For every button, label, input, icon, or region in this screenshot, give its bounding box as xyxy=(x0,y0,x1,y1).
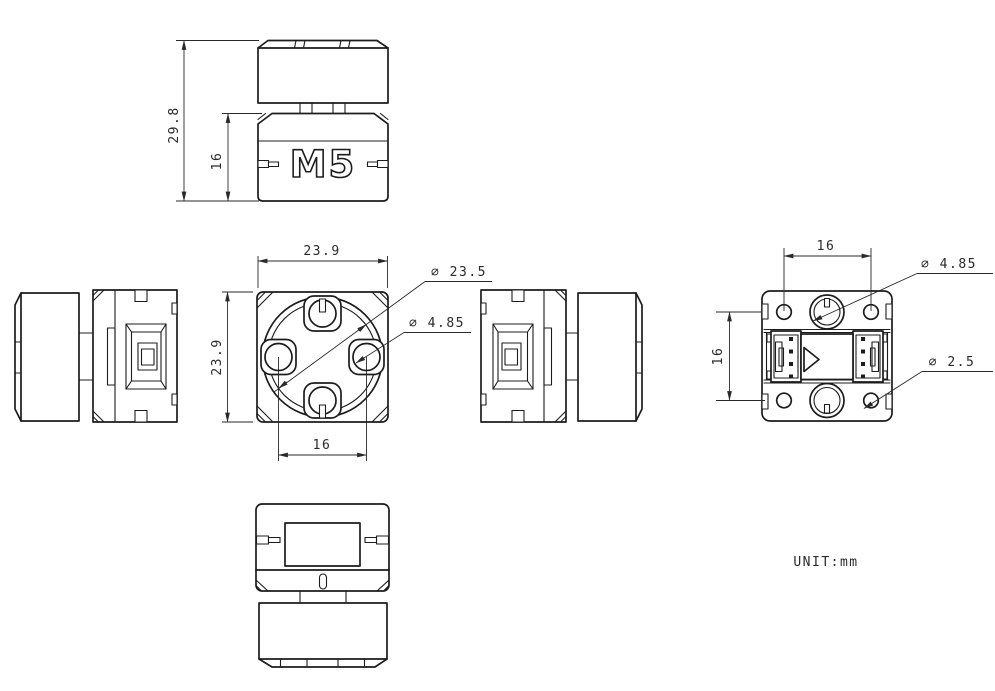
neck-left xyxy=(79,333,93,380)
conn-left-pin-3 xyxy=(789,362,793,366)
hole-top-index xyxy=(320,299,326,312)
barrel-right-body xyxy=(578,293,636,421)
bottom-barrel-skirt-ticks xyxy=(281,660,365,668)
drawing-canvas: M5 29.8 16 xyxy=(0,0,995,691)
conn-left-pin-2 xyxy=(789,350,793,354)
bottom-neck-lines xyxy=(300,591,346,603)
back-hole-top-index xyxy=(825,299,830,308)
bottom-tab-right-outer xyxy=(377,536,389,544)
dim-front-hole-spacing: 16 xyxy=(313,438,332,453)
front-height-ext xyxy=(222,292,253,422)
barrel-right-flange xyxy=(636,293,642,421)
barrel-right-ticks xyxy=(636,342,642,373)
view-side-elevation: M5 xyxy=(258,41,388,202)
dim-body-height: 16 xyxy=(210,152,225,171)
view-body-left xyxy=(93,290,177,422)
back-notch-bl xyxy=(762,394,768,409)
back-notch-tr xyxy=(886,304,892,319)
lens-barrel-side xyxy=(258,48,388,103)
body-left-top-tab xyxy=(135,290,147,302)
dim-back-spacing-h: 16 xyxy=(817,239,836,254)
body-right-bottom-tab xyxy=(512,411,524,423)
m5-logo: M5 xyxy=(290,143,357,186)
body-left-notch-bottom xyxy=(172,394,177,405)
extension-lines xyxy=(176,41,262,202)
view-barrel-right xyxy=(578,293,642,421)
body-right-notch-top xyxy=(481,303,486,314)
view-barrel-left xyxy=(15,293,79,421)
view-body-right xyxy=(481,290,566,422)
unit-label: UNIT:mm xyxy=(793,555,858,570)
barrel-band-ticks xyxy=(295,41,351,49)
view-bottom xyxy=(256,504,389,667)
back-notch-br xyxy=(886,394,892,409)
conn-right-pin-4 xyxy=(861,375,865,379)
body-right-top-tab xyxy=(512,290,524,302)
body-left-outline xyxy=(93,290,177,422)
back-hole-bottom-index xyxy=(825,405,830,414)
right-slot-outer xyxy=(378,161,389,168)
neck-lines xyxy=(300,103,345,114)
bottom-tab-left-inner xyxy=(269,538,281,543)
bottom-barrel-skirt xyxy=(259,659,387,667)
lens-barrel-chamfer-band xyxy=(258,41,388,49)
barrel-left-flange xyxy=(15,293,21,421)
body-left-notch-top xyxy=(172,303,177,314)
barrel-left-body xyxy=(21,293,79,421)
conn-right-pin-2 xyxy=(861,350,865,354)
conn-left-pin-4 xyxy=(789,375,793,379)
bottom-tab-left-outer xyxy=(257,536,269,544)
dim-front-width: 23.9 xyxy=(303,244,340,259)
barrel-left-ticks xyxy=(15,342,21,373)
hole-bottom-index xyxy=(320,405,326,418)
back-screw-bl xyxy=(777,393,792,408)
dim-back-spacing-v: 16 xyxy=(711,347,726,366)
bottom-tab-right-inner xyxy=(365,538,377,543)
dim-total-height: 29.8 xyxy=(167,106,182,143)
body-right-outline xyxy=(481,290,566,422)
bottom-barrel-outline xyxy=(259,603,387,659)
dim-back-screw-dia: ∅ 2.5 xyxy=(929,355,976,370)
dim-back-hole-dia: ∅ 4.85 xyxy=(921,257,977,272)
conn-right-pin-1 xyxy=(861,337,865,341)
conn-right-pin-3 xyxy=(861,362,865,366)
neck-right xyxy=(566,333,578,380)
right-slot-inner xyxy=(368,162,378,167)
left-slot-inner xyxy=(269,162,279,167)
engineering-drawing-page: M5 29.8 16 xyxy=(0,0,995,691)
dim-front-height: 23.9 xyxy=(210,338,225,375)
left-slot-outer xyxy=(258,161,269,168)
dims-side-elevation: 29.8 16 xyxy=(167,41,262,202)
conn-left-pin-1 xyxy=(789,337,793,341)
bottom-slot xyxy=(320,574,327,589)
view-back xyxy=(762,291,892,421)
back-notch-tl xyxy=(762,304,768,319)
dim-front-hole-dia: ∅ 4.85 xyxy=(409,316,465,331)
body-right-notch-bottom xyxy=(481,394,486,405)
dim-lens-dia: ∅ 23.5 xyxy=(431,265,487,280)
body-left-bottom-tab xyxy=(135,411,147,423)
